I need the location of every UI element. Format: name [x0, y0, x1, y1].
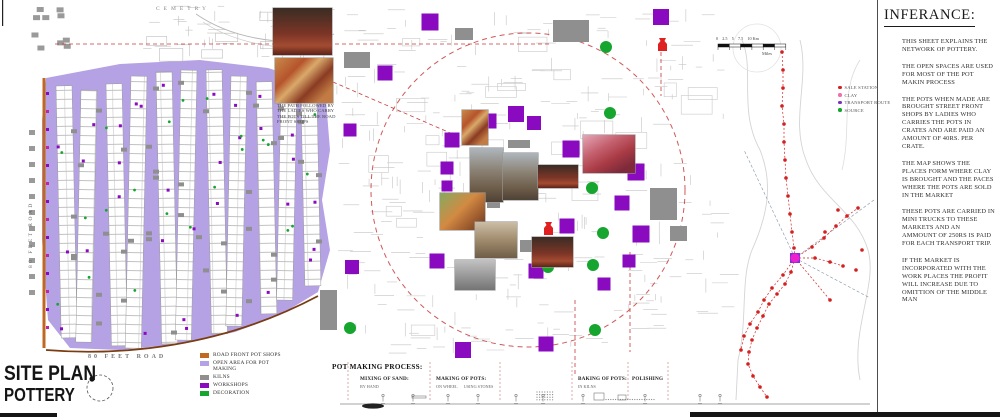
workshop-marker	[193, 227, 196, 230]
coastline-3	[842, 60, 860, 170]
decoration-marker	[262, 139, 265, 142]
workshop-marker	[119, 124, 122, 127]
kiln-marker	[153, 176, 159, 180]
workshop-marker	[60, 327, 63, 330]
sale-station-dot	[750, 338, 754, 342]
pot-line-sketch	[649, 399, 650, 400]
pot-line-sketch	[627, 399, 628, 400]
network-legend-item: SALE STATION	[838, 85, 890, 90]
process-stage: POLISHING	[632, 376, 663, 384]
decoration-marker	[105, 209, 108, 212]
pot-line-sketch	[632, 399, 633, 400]
workshop-marker	[86, 249, 89, 252]
workshop-marker	[212, 93, 215, 96]
network-legend-label: TRANSPORT ROUTE	[845, 100, 891, 105]
building-block	[37, 7, 44, 12]
sale-station-dot	[781, 86, 785, 90]
workshop-marker	[560, 219, 575, 234]
site-photo	[462, 110, 488, 145]
kiln-marker	[246, 227, 252, 231]
workshop-marker	[623, 255, 636, 268]
workshop-marker	[185, 327, 188, 330]
legend-item: DECORATION	[200, 390, 287, 396]
sale-station-dot	[761, 314, 765, 318]
sale-station-dot	[828, 260, 832, 264]
sale-station-dot	[767, 302, 771, 306]
workshop-marker	[286, 203, 289, 206]
sale-station-dot	[790, 230, 794, 234]
decoration-marker	[206, 97, 209, 100]
workshop-marker	[539, 337, 554, 352]
kiln-marker	[298, 160, 304, 164]
sale-station-dot	[755, 326, 759, 330]
process-stage-label: BAKING OF POTS:	[578, 376, 627, 382]
inference-paragraph: THE OPEN SPACES ARE USED FOR MOST OF THE…	[902, 63, 996, 87]
legend-swatch	[200, 391, 209, 396]
sale-route-line	[795, 258, 830, 300]
sale-station-dot	[758, 385, 762, 389]
process-stage-label: MAKING OF POTS:	[436, 376, 493, 382]
pot-rows-sketch	[552, 394, 553, 395]
site-photo	[538, 165, 578, 188]
pot-line-sketch	[634, 399, 635, 400]
building-block	[29, 130, 35, 135]
workshop-marker	[140, 105, 143, 108]
sale-station-dot	[836, 208, 840, 212]
sale-station-dot	[746, 362, 750, 366]
pot-icon	[658, 38, 667, 51]
pot-rows-sketch	[536, 394, 537, 395]
kiln-marker	[221, 241, 227, 245]
site-photo	[503, 153, 538, 200]
kiln-marker	[178, 81, 184, 85]
workshop-marker	[219, 161, 222, 164]
network-legend-label: SOURCE	[845, 108, 864, 113]
pot-rows-sketch	[549, 399, 550, 400]
pot-rows-sketch	[549, 391, 550, 392]
kiln-marker	[650, 188, 677, 220]
building-block	[29, 146, 35, 151]
bottom-bar-right	[690, 412, 1000, 417]
scale-segment	[775, 44, 786, 47]
transport-route-line	[744, 150, 795, 258]
sale-route-line	[795, 258, 843, 266]
site-photo	[455, 260, 495, 290]
kiln-marker	[96, 109, 102, 113]
kiln-marker	[121, 148, 127, 152]
block-outline	[411, 325, 435, 335]
sale-station-dot	[780, 104, 784, 108]
roadside-shop-marker	[46, 254, 49, 257]
kiln-marker	[320, 290, 337, 330]
workshop-marker	[309, 259, 312, 262]
kiln-marker	[553, 20, 589, 42]
site-photo	[532, 237, 573, 267]
process-sketches	[340, 391, 870, 408]
sale-route-line	[782, 52, 795, 258]
decoration-marker	[267, 143, 270, 146]
building-block	[42, 15, 49, 20]
sale-station-dot	[751, 374, 755, 378]
roadside-shop-marker	[46, 218, 49, 221]
kiln-marker	[508, 140, 530, 148]
kiln-marker	[171, 331, 177, 335]
kiln-marker	[146, 231, 152, 235]
inference-paragraph: THIS SHEET EXPLAINS THE NETWORK OF POTTE…	[902, 38, 996, 54]
kiln-marker	[121, 299, 127, 303]
decoration-marker	[586, 182, 598, 194]
pot-rows-sketch	[549, 397, 550, 398]
inference-paragraph: THESE POTS ARE CARRIED IN MINI TRUCKS TO…	[902, 208, 996, 248]
process-stage-sub: IN KILNS	[578, 384, 627, 389]
cemetery-plot	[202, 50, 223, 58]
decoration-marker	[291, 225, 294, 228]
legend-swatch	[200, 361, 209, 366]
pot-rows-sketch	[542, 397, 543, 398]
sale-station-dot	[856, 206, 860, 210]
workshop-marker	[234, 104, 237, 107]
workshop-marker	[92, 123, 95, 126]
block-outline	[396, 98, 424, 111]
pot-rows-sketch	[544, 397, 545, 398]
road-label-bottom: 80 FEET ROAD	[88, 354, 166, 360]
sale-station-dot	[782, 140, 786, 144]
workshop-marker	[292, 158, 295, 161]
decoration-marker	[306, 173, 309, 176]
sale-station-dot	[828, 298, 832, 302]
workshop-marker	[598, 278, 611, 291]
workshop-marker	[422, 14, 439, 31]
kiln-marker	[71, 129, 77, 133]
workshop-marker	[118, 195, 121, 198]
pot-line-sketch	[629, 399, 630, 400]
sheet-title: SITE PLAN	[4, 363, 96, 384]
roadside-shop-marker	[46, 128, 49, 131]
workshop-marker	[527, 116, 541, 130]
roadside-shop-marker	[46, 272, 49, 275]
sand-pile-sketch	[362, 403, 384, 408]
inference-paragraph: THE POTS WHEN MADE ARE BROUGHT STREET FR…	[902, 96, 996, 151]
kiln-marker	[128, 239, 134, 243]
sale-station-dot	[786, 194, 790, 198]
pot-icon	[544, 222, 553, 235]
pot-line-sketch	[605, 399, 606, 400]
scale-segment	[763, 44, 774, 47]
sale-station-dot	[780, 50, 784, 54]
pot-line-sketch	[651, 399, 652, 400]
pot-rows-sketch	[547, 394, 548, 395]
kiln-marker	[103, 232, 109, 236]
legend-swatch	[200, 383, 209, 388]
sale-station-dot	[789, 270, 793, 274]
workshop-marker	[118, 161, 121, 164]
workshop-marker	[633, 226, 650, 243]
kiln-marker	[278, 136, 284, 140]
pot-rows-sketch	[547, 397, 548, 398]
legend-swatch	[200, 353, 209, 358]
pot-line-sketch	[610, 399, 611, 400]
workshop-marker	[442, 181, 453, 192]
process-title: POT MAKING PROCESS:	[332, 363, 423, 371]
scale-bar	[718, 44, 786, 50]
decoration-marker	[182, 99, 185, 102]
kiln-marker	[344, 52, 370, 68]
block-outline	[664, 83, 676, 97]
pot-rows-sketch	[542, 391, 543, 392]
process-stage: MAKING OF POTS:ON WHEEL USING STONES	[436, 376, 493, 389]
photo-caption: THE PATH FOLLOWED BY THE LADIES WHO CARR…	[277, 103, 339, 125]
kiln-marker	[246, 190, 252, 194]
roadside-shop-marker	[46, 110, 49, 113]
workshop-marker	[313, 201, 316, 204]
sale-station-dot	[781, 273, 785, 277]
kiln-marker	[146, 145, 152, 149]
site-photo	[583, 135, 635, 173]
sale-station-dot	[810, 245, 814, 249]
roadside-shop-marker	[46, 92, 49, 95]
figure-sketch	[699, 394, 701, 396]
sale-station-dot	[775, 292, 779, 296]
decoration-marker	[84, 217, 87, 220]
kiln-marker	[178, 182, 184, 186]
pot-rows-sketch	[552, 397, 553, 398]
roadside-shop-marker	[46, 146, 49, 149]
inference-body: THIS SHEET EXPLAINS THE NETWORK OF POTTE…	[902, 38, 996, 313]
building-block	[37, 46, 44, 51]
decoration-marker	[240, 135, 243, 138]
workshop-marker	[82, 159, 85, 162]
decoration-marker	[166, 212, 169, 215]
scale-bar-top-label: 0 2.5 5 7.5 10 Km	[716, 36, 796, 41]
sale-route-line	[748, 258, 795, 397]
sale-station-dot	[747, 350, 751, 354]
workshop-marker	[313, 248, 316, 251]
kiln-marker	[196, 235, 202, 239]
workshop-marker	[161, 239, 164, 242]
pot-rows-sketch	[552, 399, 553, 400]
building-block	[33, 15, 40, 20]
workshop-marker	[378, 66, 393, 81]
pot-line-sketch	[646, 399, 647, 400]
process-stage-label: POLISHING	[632, 376, 663, 382]
pot-rows-sketch	[542, 394, 543, 395]
panel-divider	[877, 0, 878, 417]
sale-station-dot	[784, 176, 788, 180]
legend-label: OPEN AREA FOR POT MAKING	[213, 360, 287, 372]
network-legend-dot	[838, 93, 842, 97]
network-legend-dot	[838, 86, 842, 90]
workshop-marker	[135, 102, 138, 105]
workshop-marker	[345, 260, 359, 274]
figure-sketch	[515, 394, 517, 396]
kiln-marker	[253, 104, 259, 108]
kiln-marker	[121, 250, 127, 254]
pot-line-sketch	[641, 399, 642, 400]
kiln-marker	[221, 290, 227, 294]
process-stage-label: MIXING OF SAND:	[360, 376, 409, 382]
kiln-marker	[146, 237, 152, 241]
decoration-marker	[105, 127, 108, 130]
workshop-marker	[167, 189, 170, 192]
kiln-marker	[71, 215, 77, 219]
kiln-marker	[153, 87, 159, 91]
sale-station-dot	[770, 286, 774, 290]
decoration-marker	[133, 189, 136, 192]
roadside-shop-marker	[46, 182, 49, 185]
decoration-marker	[587, 259, 599, 271]
block-outline	[486, 87, 517, 98]
kiln-marker	[271, 278, 277, 282]
network-legend-item: CLAY	[838, 93, 890, 98]
workshop-marker	[455, 342, 471, 358]
pot-line-sketch	[639, 399, 640, 400]
workshop-marker	[216, 202, 219, 205]
process-stage: MIXING OF SAND:BY HAND	[360, 376, 409, 389]
bottom-bar-left	[0, 413, 57, 417]
kiln-marker	[203, 268, 209, 272]
workshop-marker	[144, 332, 147, 335]
sale-station-dot	[762, 298, 766, 302]
building-block	[57, 7, 64, 12]
roadside-shop-marker	[46, 326, 49, 329]
legend-label: KILNS	[213, 374, 287, 380]
sale-station-dot	[813, 256, 817, 260]
workshop-marker	[344, 124, 357, 137]
sale-station-dot	[792, 246, 796, 250]
inference-title: INFERANCE:	[884, 7, 975, 27]
pot-rows-sketch	[536, 391, 537, 392]
pot-rows-sketch	[539, 397, 540, 398]
roadside-shop-marker	[46, 308, 49, 311]
sale-station-dot	[823, 230, 827, 234]
kiln-marker	[246, 299, 252, 303]
decoration-marker	[597, 227, 609, 239]
building-block	[29, 178, 35, 183]
figure-sketch	[447, 394, 449, 396]
corner-mark-topleft	[2, 0, 3, 26]
sheet-subtitle: POTTERY	[4, 386, 75, 404]
legend-item: ROAD FRONT POT SHOPS	[200, 352, 287, 358]
site-photo	[273, 8, 332, 55]
building-block	[64, 44, 71, 49]
building-block	[29, 194, 35, 199]
figure-sketch	[382, 394, 384, 396]
scale-bar-bottom-label: Miles	[762, 51, 772, 56]
sale-station-dot	[788, 212, 792, 216]
sale-station-dot	[782, 122, 786, 126]
pot-line-sketch	[653, 399, 654, 400]
network-legend-item: TRANSPORT ROUTE	[838, 100, 890, 105]
decoration-marker	[60, 151, 63, 154]
workshop-marker	[563, 141, 580, 158]
building-block	[29, 162, 35, 167]
building-block	[31, 32, 38, 37]
network-map-legend: SALE STATIONCLAYTRANSPORT ROUTESOURCE	[838, 85, 890, 115]
sale-station-dot	[854, 268, 858, 272]
kiln-marker	[455, 28, 473, 40]
site-photo	[475, 222, 517, 258]
workshop-marker	[441, 162, 454, 175]
decoration-marker	[600, 41, 612, 53]
pot-rows-sketch	[544, 394, 545, 395]
process-stage-sub: ON WHEEL USING STONES	[436, 384, 493, 389]
scale-segment	[741, 44, 752, 47]
legend-label: DECORATION	[213, 390, 287, 396]
block-outline	[369, 156, 389, 173]
sale-station-dot	[845, 214, 849, 218]
figure-sketch	[644, 394, 646, 396]
legend-item: KILNS	[200, 374, 287, 380]
pot-rows-sketch	[552, 391, 553, 392]
legend-swatch	[200, 375, 209, 380]
kiln-sketch	[594, 393, 604, 400]
network-legend-label: SALE STATION	[845, 85, 879, 90]
kiln-marker	[153, 170, 159, 174]
kiln-marker	[670, 226, 687, 241]
kiln-marker	[203, 109, 209, 113]
workshop-marker	[430, 254, 445, 269]
cemetery-plot	[159, 49, 182, 62]
sale-station-dot	[783, 282, 787, 286]
pottery-analysis-sheet: CEMETRY 80 FEET ROAD 80 FEET ROAD SITE P…	[0, 0, 1000, 417]
decoration-marker	[88, 276, 91, 279]
sale-station-dot	[765, 395, 769, 399]
kiln-marker	[271, 253, 277, 257]
block-outline	[426, 136, 439, 145]
site-plan-legend: ROAD FRONT POT SHOPSOPEN AREA FOR POT MA…	[200, 352, 287, 398]
decoration-marker	[604, 107, 616, 119]
workshop-marker	[259, 127, 262, 130]
kiln-marker	[316, 239, 322, 243]
network-legend-dot	[838, 108, 842, 112]
pot-rows-sketch	[549, 394, 550, 395]
building-block	[29, 274, 35, 279]
block-outline	[403, 38, 420, 46]
kiln-marker	[71, 254, 77, 258]
sale-station-dot	[834, 224, 838, 228]
coast-ring	[733, 24, 781, 72]
sale-station-dot	[742, 334, 746, 338]
figure-sketch	[477, 394, 479, 396]
process-stage-sub: BY HAND	[360, 384, 409, 389]
workshop-marker	[162, 84, 165, 87]
kiln-marker	[178, 213, 184, 217]
block-outline	[681, 96, 712, 115]
workshop-marker	[57, 145, 60, 148]
sale-station-dot	[781, 68, 785, 72]
building-block	[29, 290, 35, 295]
workshop-marker	[182, 318, 185, 321]
pot-rows-sketch	[539, 399, 540, 400]
decoration-marker	[168, 120, 171, 123]
workshop-marker	[291, 134, 294, 137]
decoration-marker	[286, 229, 289, 232]
kiln-marker	[96, 321, 102, 325]
network-map	[718, 24, 874, 400]
block-outline	[688, 88, 717, 100]
sale-station-dot	[822, 236, 826, 240]
scale-segment	[729, 44, 740, 47]
inference-paragraph: THE MAP SHOWS THE PLACES FORM WHERE CLAY…	[902, 160, 996, 200]
pot-rows-sketch	[547, 399, 548, 400]
legend-label: WORKSHOPS	[213, 382, 287, 388]
pot-rows-sketch	[539, 391, 540, 392]
sale-station-dot	[739, 348, 743, 352]
pot-line-sketch	[608, 399, 609, 400]
pot-line-sketch	[637, 399, 638, 400]
roadside-shop-marker	[46, 164, 49, 167]
decoration-marker	[189, 226, 192, 229]
